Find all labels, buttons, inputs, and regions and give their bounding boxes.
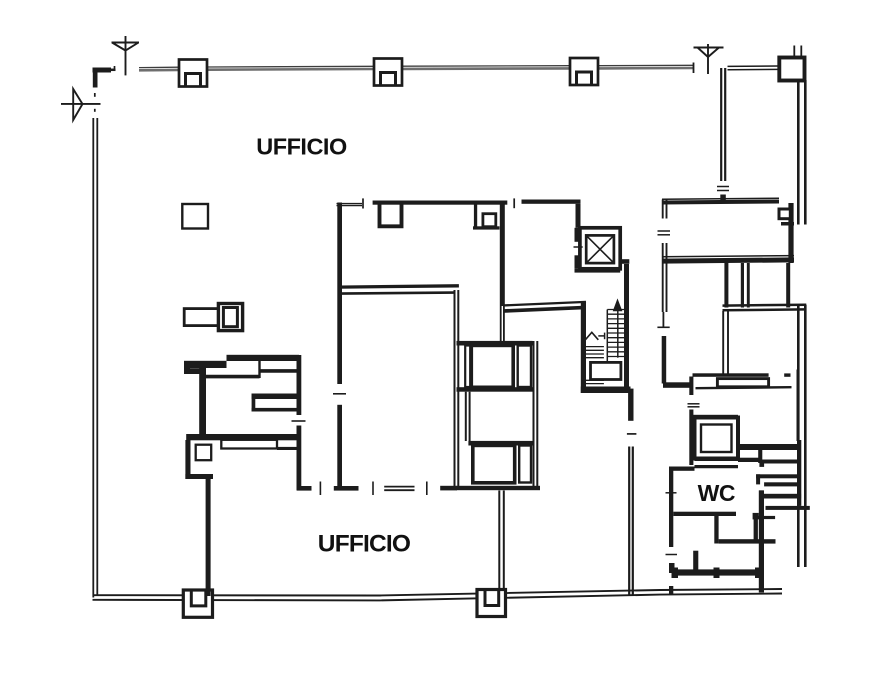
svg-text:WC: WC — [698, 480, 735, 506]
svg-text:UFFICIO: UFFICIO — [256, 133, 347, 159]
svg-text:UFFICIO: UFFICIO — [318, 530, 411, 557]
